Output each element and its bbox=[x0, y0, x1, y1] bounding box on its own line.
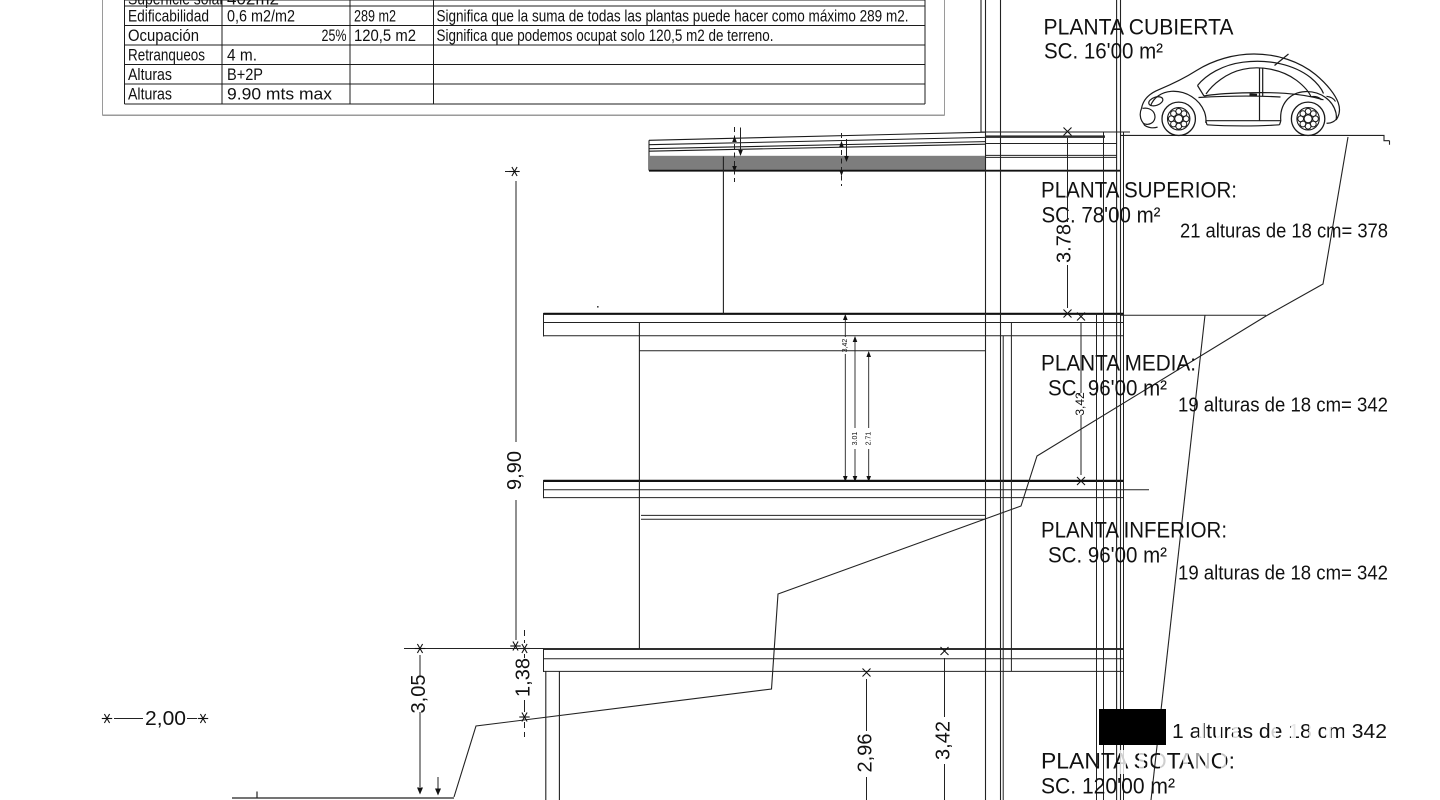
svg-text:9.90 mts max: 9.90 mts max bbox=[227, 85, 333, 104]
svg-text:120,5 m2: 120,5 m2 bbox=[354, 26, 416, 45]
svg-text:19 alturas de 18 cm= 342: 19 alturas de 18 cm= 342 bbox=[1178, 395, 1388, 417]
svg-text:Significa que la suma de todas: Significa que la suma de todas las plant… bbox=[437, 7, 909, 26]
svg-text:SC. 120'00 m²: SC. 120'00 m² bbox=[1041, 774, 1175, 799]
svg-text:25%: 25% bbox=[322, 26, 347, 45]
svg-text:4 m.: 4 m. bbox=[227, 45, 257, 64]
svg-text:PLANTA MEDIA:: PLANTA MEDIA: bbox=[1041, 351, 1196, 376]
svg-text:3,05: 3,05 bbox=[408, 675, 430, 714]
svg-text:19 alturas de 18 cm= 342: 19 alturas de 18 cm= 342 bbox=[1178, 563, 1388, 585]
svg-text:3.01: 3.01 bbox=[852, 432, 859, 446]
svg-text:Ocupación: Ocupación bbox=[128, 26, 199, 45]
svg-text:289 m2: 289 m2 bbox=[354, 7, 396, 26]
svg-text:9,90: 9,90 bbox=[504, 451, 526, 490]
svg-text:B+2P: B+2P bbox=[227, 65, 263, 84]
svg-text:3,42: 3,42 bbox=[933, 721, 955, 760]
svg-text:3,42: 3,42 bbox=[1073, 392, 1087, 416]
svg-text:2,00: 2,00 bbox=[145, 708, 186, 730]
svg-text:1,38: 1,38 bbox=[513, 658, 535, 697]
svg-text:Significa que podemos ocupat s: Significa que podemos ocupat solo 120,5 … bbox=[437, 26, 774, 45]
svg-text:2,96: 2,96 bbox=[855, 734, 877, 773]
svg-text:SC. 78'00 m²: SC. 78'00 m² bbox=[1042, 203, 1161, 228]
svg-text:Alturas: Alturas bbox=[128, 65, 172, 84]
svg-text:3,42: 3,42 bbox=[842, 339, 849, 353]
svg-text:2.71: 2.71 bbox=[866, 432, 873, 446]
svg-text:SC. 96'00 m²: SC. 96'00 m² bbox=[1048, 376, 1167, 401]
svg-text:Retranqueos: Retranqueos bbox=[128, 45, 205, 64]
svg-text:1 alturas de 18 cm 342: 1 alturas de 18 cm 342 bbox=[1172, 721, 1387, 743]
svg-text:PLANTA INFERIOR:: PLANTA INFERIOR: bbox=[1041, 518, 1227, 543]
svg-text:Alturas: Alturas bbox=[128, 85, 172, 104]
svg-text:0,6 m2/m2: 0,6 m2/m2 bbox=[227, 7, 295, 26]
svg-text:Edificabilidad: Edificabilidad bbox=[128, 7, 209, 26]
svg-text:PLANTA CUBIERTA: PLANTA CUBIERTA bbox=[1044, 15, 1234, 40]
svg-text:3.78: 3.78 bbox=[1054, 224, 1076, 263]
svg-text:21 alturas de 18 cm= 378: 21 alturas de 18 cm= 378 bbox=[1180, 221, 1388, 243]
svg-text:PLANTA SUPERIOR:: PLANTA SUPERIOR: bbox=[1041, 178, 1237, 203]
svg-text:SC. 96'00 m²: SC. 96'00 m² bbox=[1048, 543, 1167, 568]
svg-text:SC. 16'00 m²: SC. 16'00 m² bbox=[1044, 39, 1163, 64]
